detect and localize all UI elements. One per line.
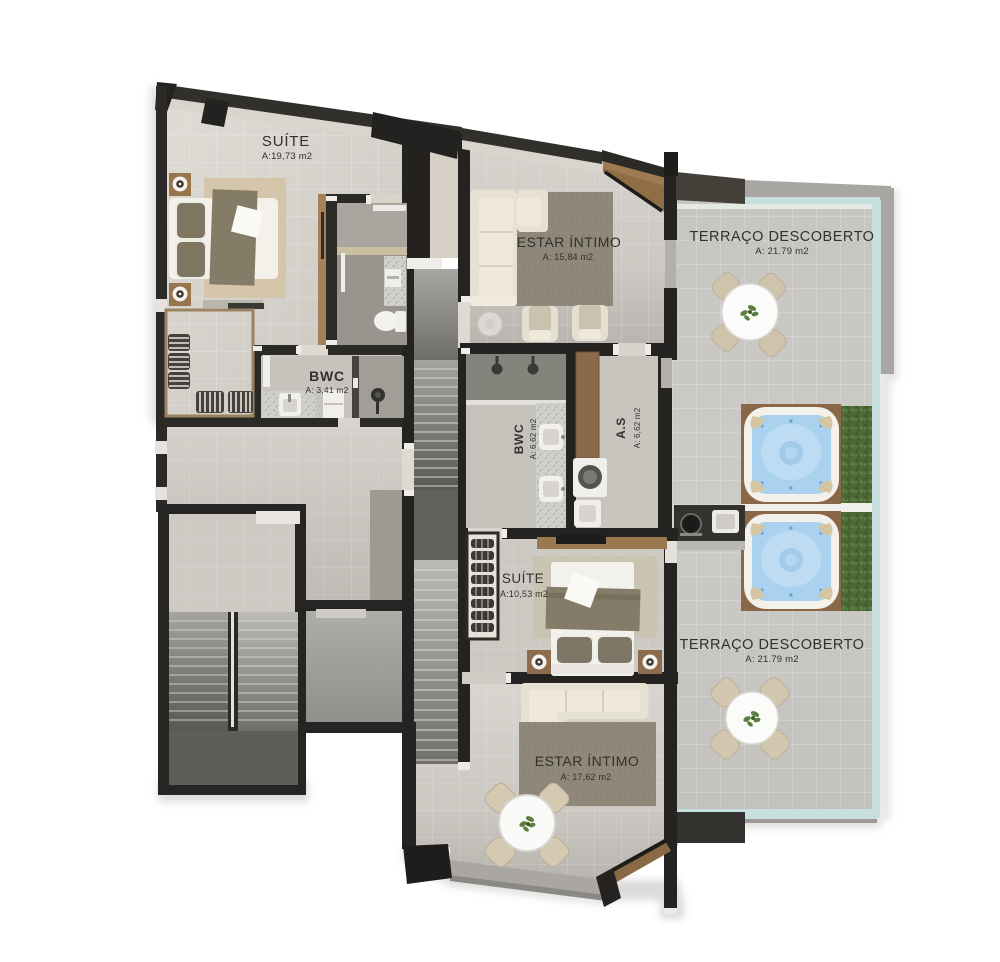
svg-text:A.S: A.S — [614, 417, 628, 439]
svg-text:SUÍTE: SUÍTE — [262, 133, 310, 150]
svg-text:TERRAÇO DESCOBERTO: TERRAÇO DESCOBERTO — [680, 637, 865, 653]
svg-text:A: 15,84 m2: A: 15,84 m2 — [543, 252, 594, 262]
svg-text:ESTAR ÍNTIMO: ESTAR ÍNTIMO — [535, 753, 640, 769]
svg-text:BWC: BWC — [512, 424, 526, 454]
svg-text:A: 3,41 m2: A: 3,41 m2 — [305, 385, 348, 395]
svg-text:A: 6,62 m2: A: 6,62 m2 — [633, 407, 642, 448]
svg-text:ESTAR ÍNTIMO: ESTAR ÍNTIMO — [517, 234, 622, 250]
svg-text:A: 21.79 m2: A: 21.79 m2 — [755, 246, 808, 257]
svg-text:TERRAÇO DESCOBERTO: TERRAÇO DESCOBERTO — [690, 229, 875, 245]
svg-text:A: 6,62 m2: A: 6,62 m2 — [529, 418, 538, 459]
svg-text:SUÍTE: SUÍTE — [502, 571, 544, 586]
svg-text:A: 17,62 m2: A: 17,62 m2 — [561, 772, 612, 782]
svg-text:A: 21.79 m2: A: 21.79 m2 — [745, 654, 798, 665]
svg-text:A:19,73 m2: A:19,73 m2 — [262, 151, 313, 162]
svg-text:BWC: BWC — [309, 368, 345, 384]
svg-text:A:10,53 m2: A:10,53 m2 — [500, 589, 548, 599]
